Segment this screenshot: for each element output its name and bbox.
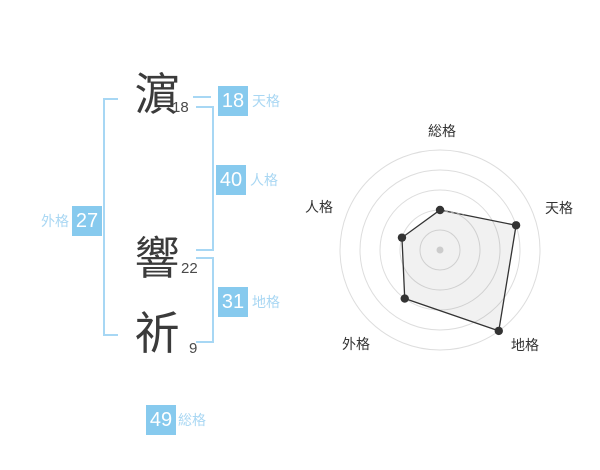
stroke-count-1: 18 [172, 100, 189, 115]
tenkaku-tick [193, 96, 211, 98]
name-fortune-panel: 濵 18 響 22 祈 9 18 天格 40 人格 31 地格 外格 27 49… [0, 0, 600, 470]
radar-axis-label-chikaku: 地格 [511, 337, 539, 353]
jinkaku-label: 人格 [250, 173, 278, 187]
name-character-3: 祈 [132, 311, 182, 356]
radar-axis-label-soukaku: 総格 [428, 123, 456, 139]
soukaku-label: 総格 [178, 413, 206, 427]
radar-axis-label-jinkaku: 人格 [305, 199, 333, 215]
tenkaku-label: 天格 [252, 94, 280, 108]
chikaku-score-box: 31 [218, 287, 248, 317]
jinkaku-score-box: 40 [216, 165, 246, 195]
gaikaku-label: 外格 [41, 214, 69, 228]
chikaku-bracket [196, 257, 214, 343]
radar-axis-label-tenkaku: 天格 [545, 200, 573, 216]
gaikaku-bracket [103, 98, 118, 336]
chikaku-label: 地格 [252, 295, 280, 309]
name-character-2: 響 [132, 236, 182, 281]
radar-plot [340, 150, 540, 350]
soukaku-score-box: 49 [146, 405, 176, 435]
radar-chart: 総格 天格 地格 外格 人格 [300, 115, 600, 365]
jinkaku-bracket [196, 106, 214, 251]
gaikaku-score-box: 27 [72, 206, 102, 236]
stroke-count-3: 9 [189, 341, 197, 356]
radar-axis-label-gaikaku: 外格 [342, 336, 370, 352]
tenkaku-score-box: 18 [218, 86, 248, 116]
